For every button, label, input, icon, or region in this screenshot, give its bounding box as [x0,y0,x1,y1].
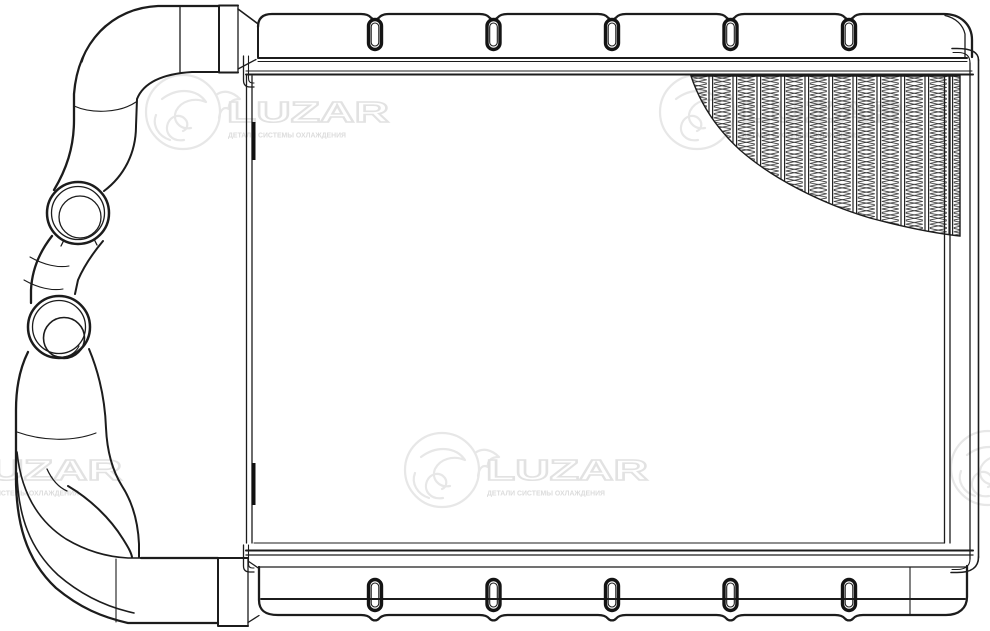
mounting-slot [724,20,737,50]
mounting-slots-top [369,20,856,50]
top-tank [246,14,973,75]
mounting-slot-inner [608,23,616,46]
heater-core-technical-drawing: LUZAR ДЕТАЛИ СИСТЕМЫ ОХЛАЖДЕНИЯ LUZAR ДЕ… [0,0,990,631]
mounting-slot [369,580,382,611]
pipe-fitting-lower [28,296,90,359]
mounting-slot [487,20,500,50]
mounting-slot [487,580,500,611]
fin-region [691,76,960,236]
bottom-tank [246,543,973,620]
mounting-slot-inner [371,583,379,607]
mounting-slot-inner [490,23,498,46]
mounting-slot [843,20,856,50]
mounting-slot [843,580,856,611]
mounting-slot [369,20,382,50]
mounting-slot-inner [608,583,616,607]
mounting-slot [606,20,619,50]
watermark-tagline-text: ДЕТАЛИ СИСТЕМЫ ОХЛАЖДЕНИЯ [228,131,346,140]
mounting-slot [724,580,737,611]
mounting-slot-inner [845,583,853,607]
watermark-tagline-text: ДЕТАЛИ СИСТЕМЫ ОХЛАЖДЕНИЯ [0,489,79,498]
pipe-block-top [219,6,258,73]
mounting-slot-inner [371,23,379,46]
watermark-tagline-text: ДЕТАЛИ СИСТЕМЫ ОХЛАЖДЕНИЯ [487,489,605,498]
core-fins [691,76,960,236]
product-illustration: LUZAR ДЕТАЛИ СИСТЕМЫ ОХЛАЖДЕНИЯ LUZAR ДЕ… [0,0,990,631]
mounting-slot-inner [727,583,735,607]
dragon-logo-icon [146,75,240,149]
mounting-slot-inner [727,23,735,46]
watermark-luzar-2: LUZAR ДЕТАЛИ СИСТЕМЫ ОХЛАЖДЕНИЯ [405,433,648,507]
mounting-slot-inner [490,583,498,607]
dragon-logo-icon [405,433,499,507]
watermark-luzar-1: LUZAR ДЕТАЛИ СИСТЕМЫ ОХЛАЖДЕНИЯ [146,75,389,149]
watermark-brand-text: LUZAR [486,455,648,487]
inlet-outlet-pipes [16,6,219,623]
mounting-slot-inner [845,23,853,46]
mounting-slot [606,580,619,611]
mounting-slots-bottom [369,580,856,611]
watermark-brand-text: LUZAR [227,97,389,129]
pipe-fitting-upper [47,182,109,246]
